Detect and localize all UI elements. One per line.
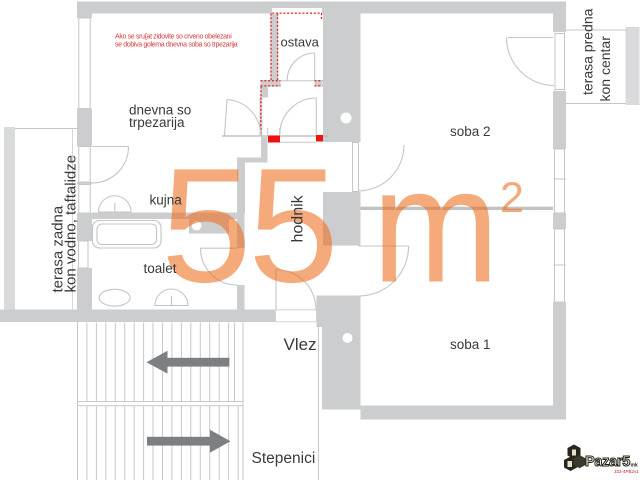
svg-text:trpezarija: trpezarija — [129, 115, 185, 130]
svg-text:kon vodno, taftalidze: kon vodno, taftalidze — [63, 155, 80, 293]
svg-text:soba 1: soba 1 — [450, 337, 491, 352]
svg-text:soba 2: soba 2 — [450, 124, 491, 139]
svg-text:2: 2 — [500, 174, 524, 222]
svg-text:Ako se sru{at zidovite so crve: Ako se sru{at zidovite so crveno obeleza… — [115, 34, 232, 41]
svg-text:terasa predna: terasa predna — [580, 8, 596, 95]
svg-text:toalet: toalet — [144, 261, 177, 276]
svg-text:hodnik: hodnik — [290, 194, 307, 242]
svg-text:Pazar5: Pazar5 — [585, 454, 630, 470]
svg-text:mk: mk — [631, 463, 638, 469]
svg-text:kujna: kujna — [150, 193, 183, 208]
svg-text:se dobiva golema dnevna soba s: se dobiva golema dnevna soba so trpezari… — [115, 42, 238, 49]
svg-text:Stepenici: Stepenici — [252, 450, 316, 467]
svg-text:kon centar: kon centar — [597, 36, 613, 102]
svg-text:ostava: ostava — [281, 35, 320, 50]
svg-text:Vlez: Vlez — [284, 335, 317, 354]
svg-text:m: m — [372, 135, 499, 317]
svg-text:333-4PB2v1: 333-4PB2v1 — [614, 469, 639, 474]
svg-text:55: 55 — [161, 134, 335, 317]
